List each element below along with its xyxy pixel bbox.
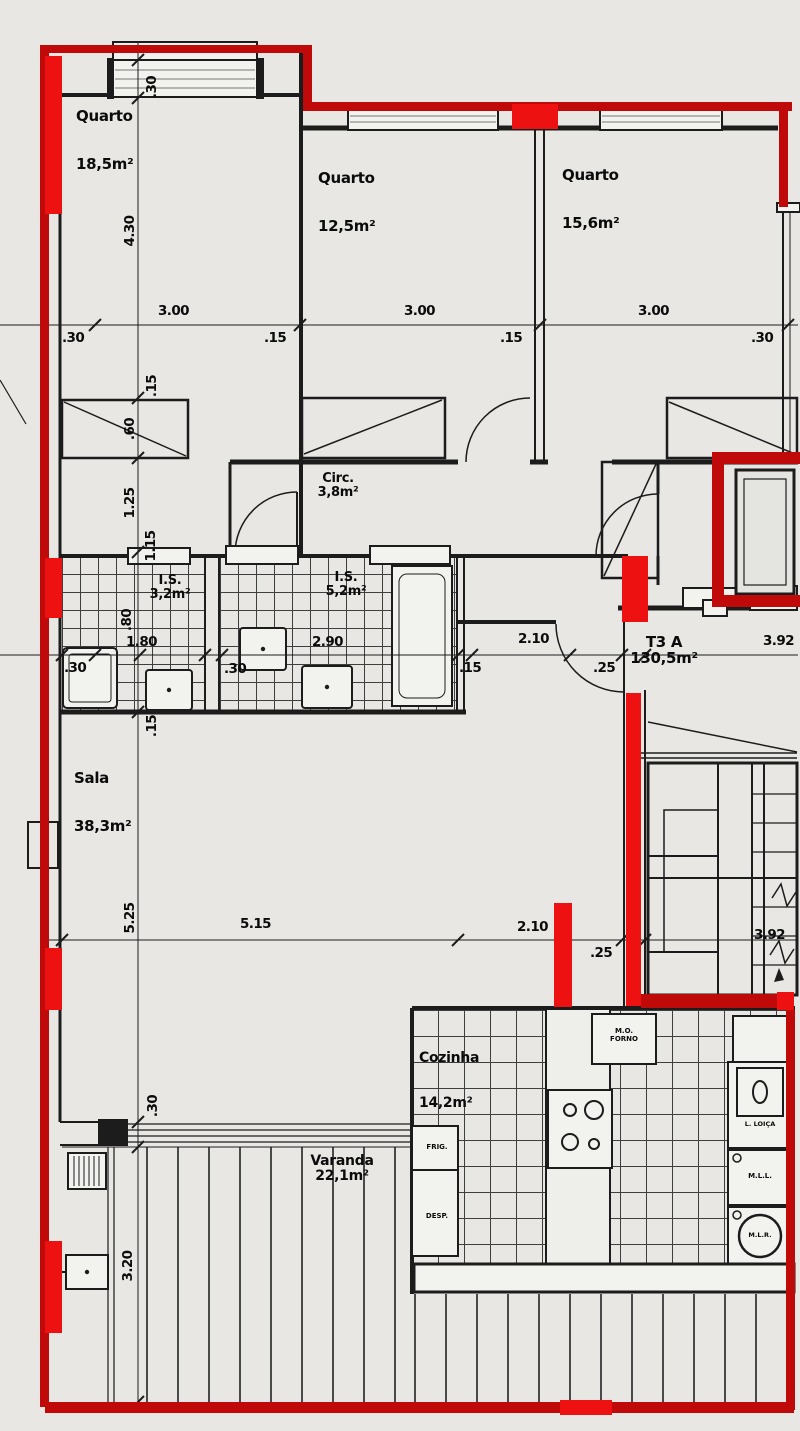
appliance-label-washer: M.L.R. (739, 1231, 781, 1239)
sink-dot (261, 647, 265, 651)
appliance-label-fridge: FRIG. (417, 1143, 457, 1151)
red-wall-segment (45, 558, 62, 618)
dim-label: 3.20 (120, 1244, 136, 1288)
door-arc (235, 492, 297, 554)
vanity (226, 546, 298, 564)
room-area: 12,5m² (318, 218, 375, 234)
room-area: 18,5m² (76, 156, 133, 172)
room-area: 3,8m² (308, 486, 368, 500)
room-area: 22,1m² (302, 1169, 382, 1184)
sink-basin-box (737, 1068, 783, 1116)
dim-label: 1.15 (143, 524, 159, 568)
red-boundary-bottom (45, 1402, 794, 1413)
dim-label: .30 (144, 65, 160, 109)
elevator-shaft-wall (712, 595, 800, 607)
room-name: Cozinha (419, 1051, 479, 1066)
dim-label: .30 (64, 660, 86, 676)
toilet-dot (167, 688, 171, 692)
room-label-varanda: Varanda 22,1m² (302, 1154, 382, 1184)
dim-label: .15 (459, 660, 481, 676)
wardrobe-diagonal (669, 402, 795, 454)
room-label-quarto-1: Quarto 18,5m² (76, 76, 133, 204)
appliance-label-pantry: DESP. (417, 1212, 457, 1220)
red-wall-segment (622, 556, 648, 622)
exterior-detail-line (0, 380, 26, 424)
room-area: 14,2m² (419, 1096, 479, 1111)
red-boundary-right (786, 1010, 795, 1410)
appliance-label-dishwasher: M.L.L. (734, 1172, 786, 1180)
red-wall-segment (45, 1241, 62, 1333)
appliance-mo: M.O. (600, 1027, 648, 1035)
break-arrow (774, 968, 784, 982)
plan-linework (0, 0, 800, 1431)
stair-diagonal (648, 722, 797, 752)
red-wall-segment (45, 56, 62, 214)
room-label-quarto-2: Quarto 12,5m² (318, 138, 375, 266)
elevator-shaft-wall (712, 452, 800, 464)
room-name: Quarto (318, 170, 375, 186)
elevator-cab (736, 470, 794, 594)
room-label-quarto-3: Quarto 15,6m² (562, 135, 619, 263)
dim-label: .60 (122, 407, 138, 451)
dim-label: .15 (500, 330, 522, 346)
floor-plan: Quarto 18,5m² Quarto 12,5m² Quarto 15,6m… (0, 0, 800, 1431)
appliance-label-sink: L. LOIÇA (731, 1120, 789, 1128)
dim-label: 2.10 (517, 919, 548, 935)
elevator (736, 470, 794, 594)
red-boundary-left (40, 45, 49, 1407)
red-wall-segment (777, 992, 794, 1010)
dim-label: .30 (751, 330, 773, 346)
dim-label: 2.90 (312, 634, 343, 650)
door-arc (466, 398, 530, 462)
vanity (370, 546, 450, 564)
room-label-circ: Circ. 3,8m² (308, 472, 368, 500)
unit-label: T3 A 130,5m² (626, 634, 702, 666)
shower-tray (63, 648, 117, 708)
room-name: I.S. (142, 574, 198, 588)
dim-label: .30 (62, 330, 84, 346)
red-boundary-step (303, 45, 312, 109)
room-name: I.S. (318, 571, 374, 585)
dim-label: .15 (144, 704, 160, 748)
dim-label: 3.92 (754, 927, 785, 943)
windows (60, 42, 800, 212)
red-wall-segment (641, 994, 794, 1008)
red-wall-segment (560, 1400, 612, 1415)
dim-label: .30 (224, 661, 246, 677)
railing-post (98, 1119, 128, 1146)
window-band (348, 110, 498, 130)
dim-label: 5.25 (122, 896, 138, 940)
appliance-forno: FORNO (600, 1035, 648, 1043)
dim-label: 1.80 (126, 634, 157, 650)
appliance-label-oven: M.O. FORNO (600, 1027, 648, 1044)
dim-label: .25 (593, 660, 615, 676)
red-wall-segment (626, 693, 641, 1006)
room-name: Quarto (562, 167, 619, 183)
red-boundary-right-stub (779, 102, 788, 207)
vanity (128, 548, 190, 564)
kitchen-veranda-counter (414, 1264, 794, 1292)
dim-label: 1.25 (122, 481, 138, 525)
hob (548, 1090, 612, 1168)
fixture-dot (85, 1270, 89, 1274)
dim-label: 3.92 (763, 633, 794, 649)
bathtub (392, 566, 452, 706)
unit-code: T3 A (626, 634, 702, 650)
dim-label: 4.30 (122, 209, 138, 253)
room-label-cozinha: Cozinha 14,2m² (419, 1021, 479, 1141)
red-wall-segment (45, 948, 62, 1010)
room-name: Quarto (76, 108, 133, 124)
dim-label: .15 (264, 330, 286, 346)
dim-label: 3.00 (158, 303, 189, 319)
room-area: 38,3m² (74, 818, 131, 834)
wardrobe-diagonal (304, 400, 442, 454)
room-name: Sala (74, 770, 131, 786)
stair-landing-lines (641, 753, 797, 758)
room-name: Circ. (308, 472, 368, 486)
window-band (600, 110, 722, 130)
kitchen-cabinet (733, 1016, 791, 1062)
room-area: 15,6m² (562, 215, 619, 231)
room-label-sala: Sala 38,3m² (74, 738, 131, 866)
dim-label: .30 (145, 1084, 161, 1128)
dim-label: .25 (590, 945, 612, 961)
stairs (641, 722, 797, 995)
room-area: 5,2m² (318, 585, 374, 599)
room-label-is2: I.S. 5,2m² (318, 571, 374, 599)
window-jamb (256, 58, 264, 99)
red-wall-segment (554, 903, 572, 1007)
toilet-dot (325, 685, 329, 689)
dim-label: 2.10 (518, 631, 549, 647)
red-boundary-top (40, 45, 310, 53)
dim-label: 5.15 (240, 916, 271, 932)
stair-inner-box (664, 810, 718, 878)
unit-area: 130,5m² (626, 650, 702, 666)
stair-inner-box (664, 878, 718, 952)
room-name: Varanda (302, 1154, 382, 1169)
elevator-shaft-wall (712, 452, 724, 607)
room-label-is1: I.S. 3,2m² (142, 574, 198, 602)
veranda-wall-stub (60, 1122, 98, 1145)
dim-label: 3.00 (404, 303, 435, 319)
room-area: 3,2m² (142, 588, 198, 602)
red-wall-segment (512, 104, 558, 129)
railing-lines (128, 1124, 410, 1142)
dimension-lines (0, 42, 798, 1408)
break-symbol (770, 884, 796, 963)
dim-label: 3.00 (638, 303, 669, 319)
dim-label: .15 (144, 364, 160, 408)
